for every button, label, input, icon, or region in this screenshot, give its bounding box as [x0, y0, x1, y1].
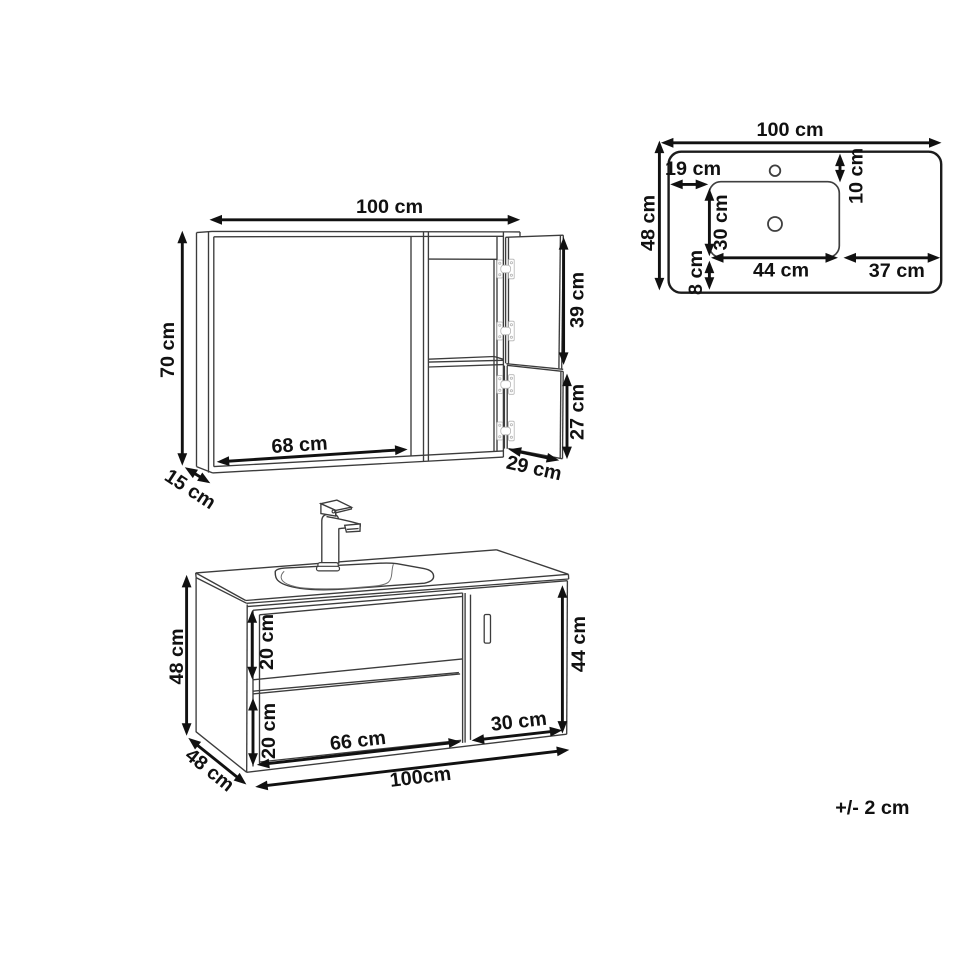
svg-text:48 cm: 48 cm — [638, 195, 660, 251]
svg-text:20 cm: 20 cm — [256, 614, 278, 670]
svg-text:100 cm: 100 cm — [356, 196, 423, 218]
svg-text:37 cm: 37 cm — [869, 260, 925, 282]
svg-text:19 cm: 19 cm — [665, 158, 721, 180]
svg-text:70 cm: 70 cm — [157, 322, 179, 378]
svg-text:48 cm: 48 cm — [166, 628, 188, 684]
svg-text:27 cm: 27 cm — [567, 384, 589, 440]
svg-text:20 cm: 20 cm — [258, 703, 280, 759]
svg-text:44 cm: 44 cm — [568, 616, 590, 672]
svg-text:44 cm: 44 cm — [753, 260, 809, 282]
svg-text:39 cm: 39 cm — [567, 272, 589, 328]
svg-text:30 cm: 30 cm — [710, 194, 732, 250]
svg-text:8 cm: 8 cm — [685, 250, 707, 295]
svg-text:68 cm: 68 cm — [271, 432, 328, 458]
svg-text:+/- 2 cm: +/- 2 cm — [835, 797, 909, 819]
svg-text:10 cm: 10 cm — [846, 148, 868, 204]
svg-text:100 cm: 100 cm — [756, 119, 823, 141]
